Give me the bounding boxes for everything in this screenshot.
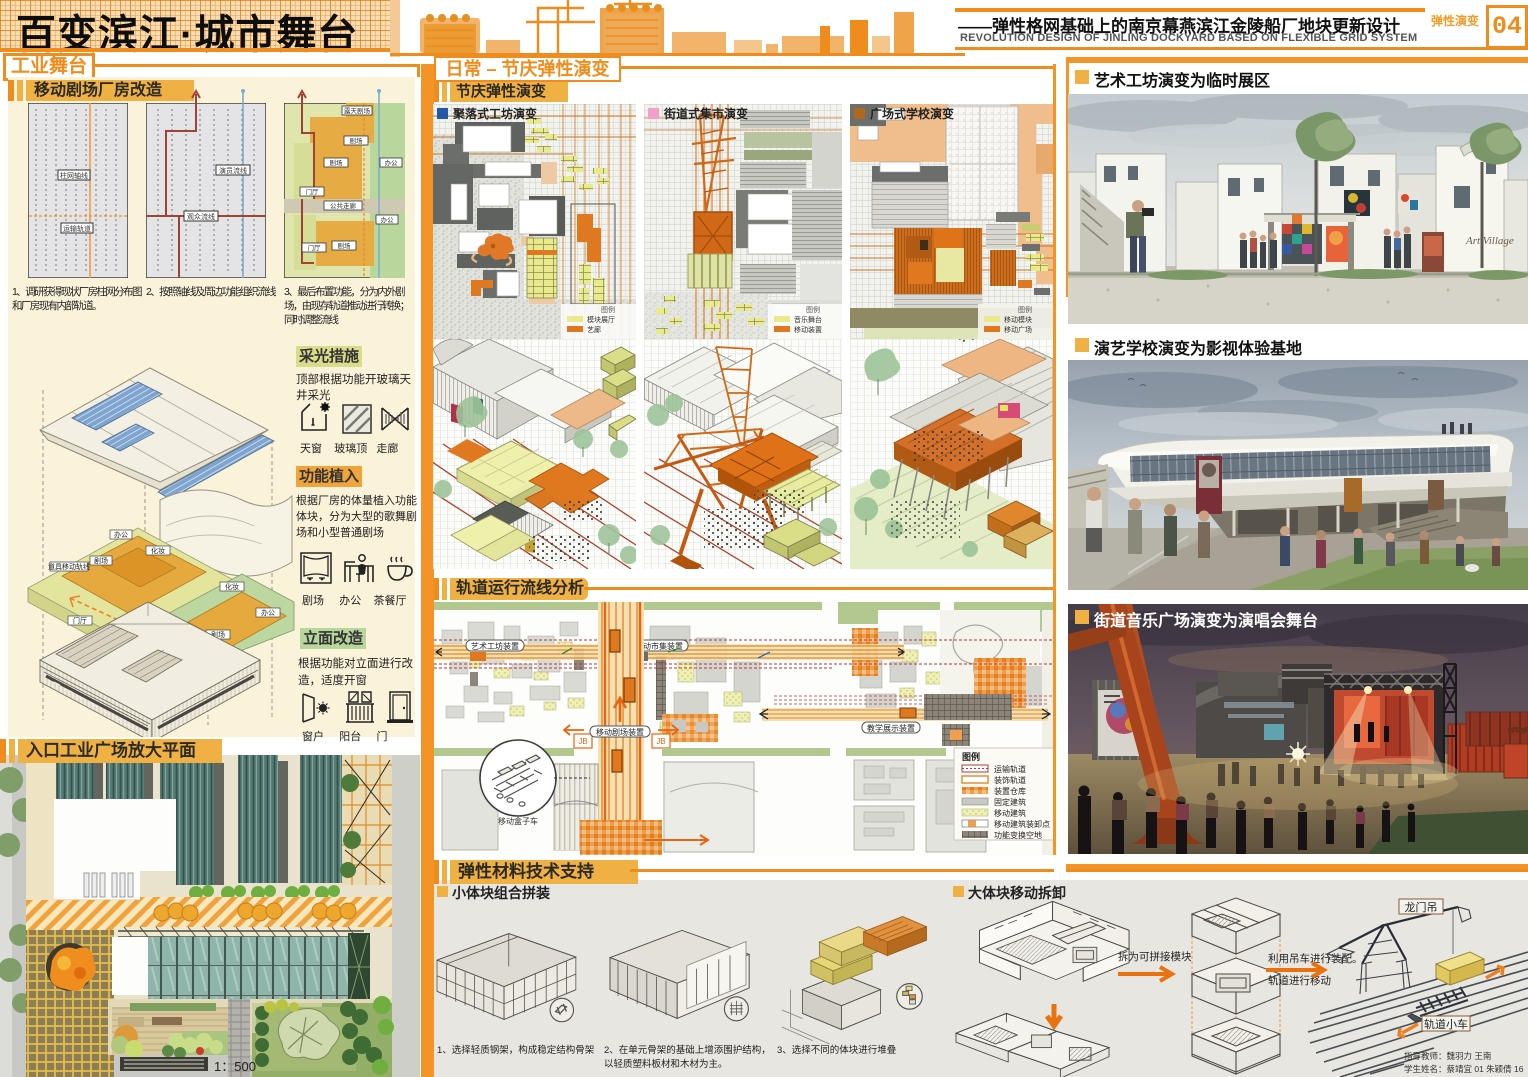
svg-text:Art Village: Art Village bbox=[1465, 235, 1514, 247]
svg-text:移动模块: 移动模块 bbox=[1004, 315, 1032, 324]
svg-text:剧场: 剧场 bbox=[338, 241, 352, 250]
svg-text:办公: 办公 bbox=[261, 608, 275, 617]
svg-text:2、在单元骨架的基础上增添围护结构，: 2、在单元骨架的基础上增添围护结构， bbox=[604, 1044, 771, 1056]
svg-text:演员流线: 演员流线 bbox=[219, 166, 247, 175]
svg-text:1、选择轻质钢架，构成稳定结构骨架: 1、选择轻质钢架，构成稳定结构骨架 bbox=[437, 1044, 595, 1056]
svg-text:图例: 图例 bbox=[601, 305, 615, 314]
svg-text:露天剧场: 露天剧场 bbox=[344, 106, 371, 115]
svg-text:广场式学校演变: 广场式学校演变 bbox=[870, 106, 954, 121]
svg-text:剧场: 剧场 bbox=[330, 158, 344, 167]
svg-text:柱网轴线: 柱网轴线 bbox=[60, 171, 88, 180]
svg-text:门厅: 门厅 bbox=[73, 616, 87, 625]
svg-text:装置仓库: 装置仓库 bbox=[994, 786, 1026, 796]
svg-text:移动装置: 移动装置 bbox=[794, 325, 822, 334]
svg-text:轨道进行移动: 轨道进行移动 bbox=[1268, 974, 1331, 987]
svg-text:教学展示装置: 教学展示装置 bbox=[867, 723, 915, 733]
svg-text:移动建筑装卸点: 移动建筑装卸点 bbox=[994, 819, 1050, 829]
svg-text:移动建筑: 移动建筑 bbox=[994, 808, 1026, 818]
svg-text:JB: JB bbox=[578, 737, 587, 746]
svg-text:办公: 办公 bbox=[381, 215, 395, 224]
svg-text:剧场: 剧场 bbox=[94, 556, 108, 565]
svg-text:运输轨道: 运输轨道 bbox=[994, 764, 1026, 774]
svg-text:艺廊: 艺廊 bbox=[587, 325, 601, 334]
svg-text:拆为可拼接模块: 拆为可拼接模块 bbox=[1118, 950, 1192, 963]
svg-text:门厅: 门厅 bbox=[306, 187, 320, 196]
svg-text:1：500: 1：500 bbox=[214, 1059, 256, 1074]
svg-text:图例: 图例 bbox=[1018, 305, 1032, 314]
svg-text:移动广场: 移动广场 bbox=[1004, 325, 1032, 334]
svg-text:道具移动轨线: 道具移动轨线 bbox=[48, 562, 90, 571]
svg-text:模块展厅: 模块展厅 bbox=[587, 315, 615, 324]
svg-text:公共走廊: 公共走廊 bbox=[330, 201, 357, 210]
svg-text:化妆: 化妆 bbox=[225, 582, 239, 591]
svg-text:办公: 办公 bbox=[114, 530, 128, 539]
svg-text:音乐舞台: 音乐舞台 bbox=[794, 315, 822, 324]
svg-text:剧场: 剧场 bbox=[350, 136, 364, 145]
svg-text:功能变换空地: 功能变换空地 bbox=[994, 830, 1042, 840]
svg-text:街道式集市演变: 街道式集市演变 bbox=[663, 106, 748, 121]
svg-text:运输轨道: 运输轨道 bbox=[63, 224, 91, 233]
svg-text:移动剧场装置: 移动剧场装置 bbox=[596, 727, 644, 737]
svg-text:龙门吊: 龙门吊 bbox=[1405, 900, 1438, 914]
svg-text:固定建筑: 固定建筑 bbox=[994, 797, 1026, 807]
svg-text:20'DryFreight: 20'DryFreight bbox=[1508, 728, 1528, 734]
svg-text:轨道小车: 轨道小车 bbox=[1424, 1017, 1468, 1031]
svg-text:以轻质塑料板材和木材为主。: 以轻质塑料板材和木材为主。 bbox=[604, 1058, 728, 1070]
svg-text:门厅: 门厅 bbox=[308, 243, 322, 252]
svg-text:艺术工坊装置: 艺术工坊装置 bbox=[471, 641, 519, 651]
svg-text:3、选择不同的体块进行堆叠: 3、选择不同的体块进行堆叠 bbox=[777, 1044, 896, 1056]
svg-text:移动盒子车: 移动盒子车 bbox=[498, 816, 538, 826]
svg-text:办公: 办公 bbox=[385, 158, 399, 167]
svg-text:图例: 图例 bbox=[962, 751, 980, 762]
svg-text:图例: 图例 bbox=[806, 305, 820, 314]
svg-text:化妆: 化妆 bbox=[151, 546, 165, 555]
svg-text:装饰轨道: 装饰轨道 bbox=[994, 775, 1026, 785]
svg-text:聚落式工坊演变: 聚落式工坊演变 bbox=[452, 106, 537, 121]
svg-text:观众流线: 观众流线 bbox=[187, 212, 215, 221]
svg-text:JB: JB bbox=[656, 737, 665, 746]
